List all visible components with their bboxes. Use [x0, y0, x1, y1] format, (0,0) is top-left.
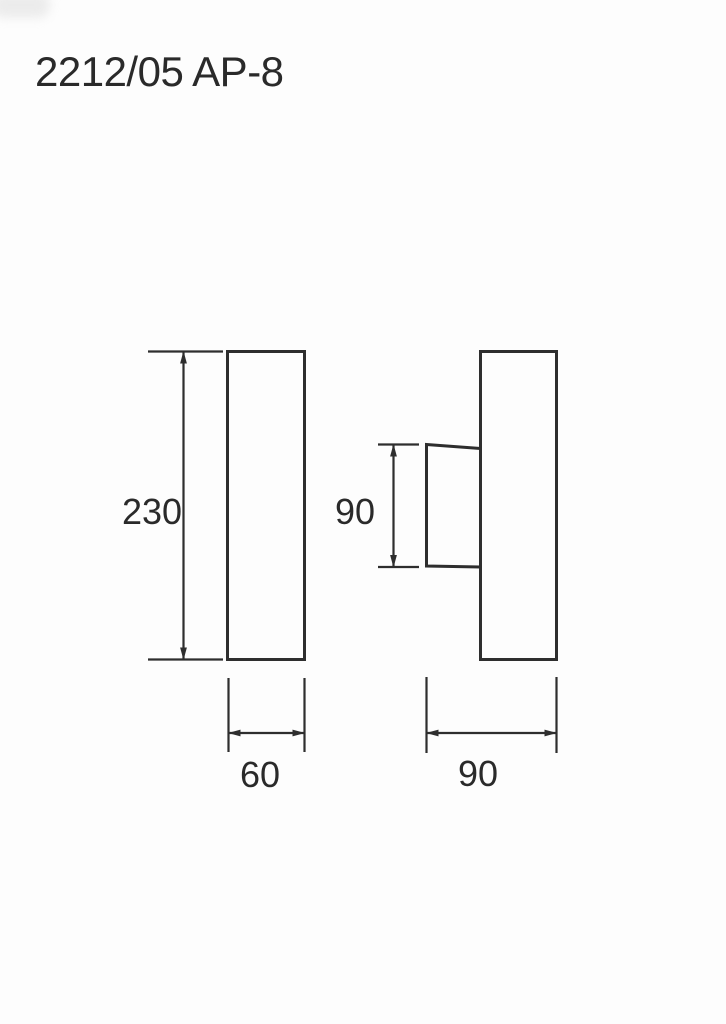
side-depth-dimension: 90 [427, 677, 557, 794]
front-width-dim-label: 60 [240, 754, 280, 795]
bracket-height-dim-label: 90 [335, 491, 375, 532]
front-width-dimension: 60 [229, 678, 305, 795]
front-height-dimension: 230 [122, 352, 223, 660]
side-view-body-outline [481, 352, 557, 660]
mounting-bracket-outline [427, 445, 481, 568]
dimension-drawing-canvas: 230 60 90 90 [0, 0, 726, 1024]
technical-drawing-page: 2212/05 AP-8 230 60 [0, 0, 726, 1024]
front-view [228, 352, 305, 660]
side-depth-dim-label: 90 [458, 753, 498, 794]
side-view [427, 352, 557, 660]
bracket-height-dimension: 90 [335, 445, 419, 568]
front-view-body-outline [228, 352, 305, 660]
front-height-dim-label: 230 [122, 491, 182, 532]
